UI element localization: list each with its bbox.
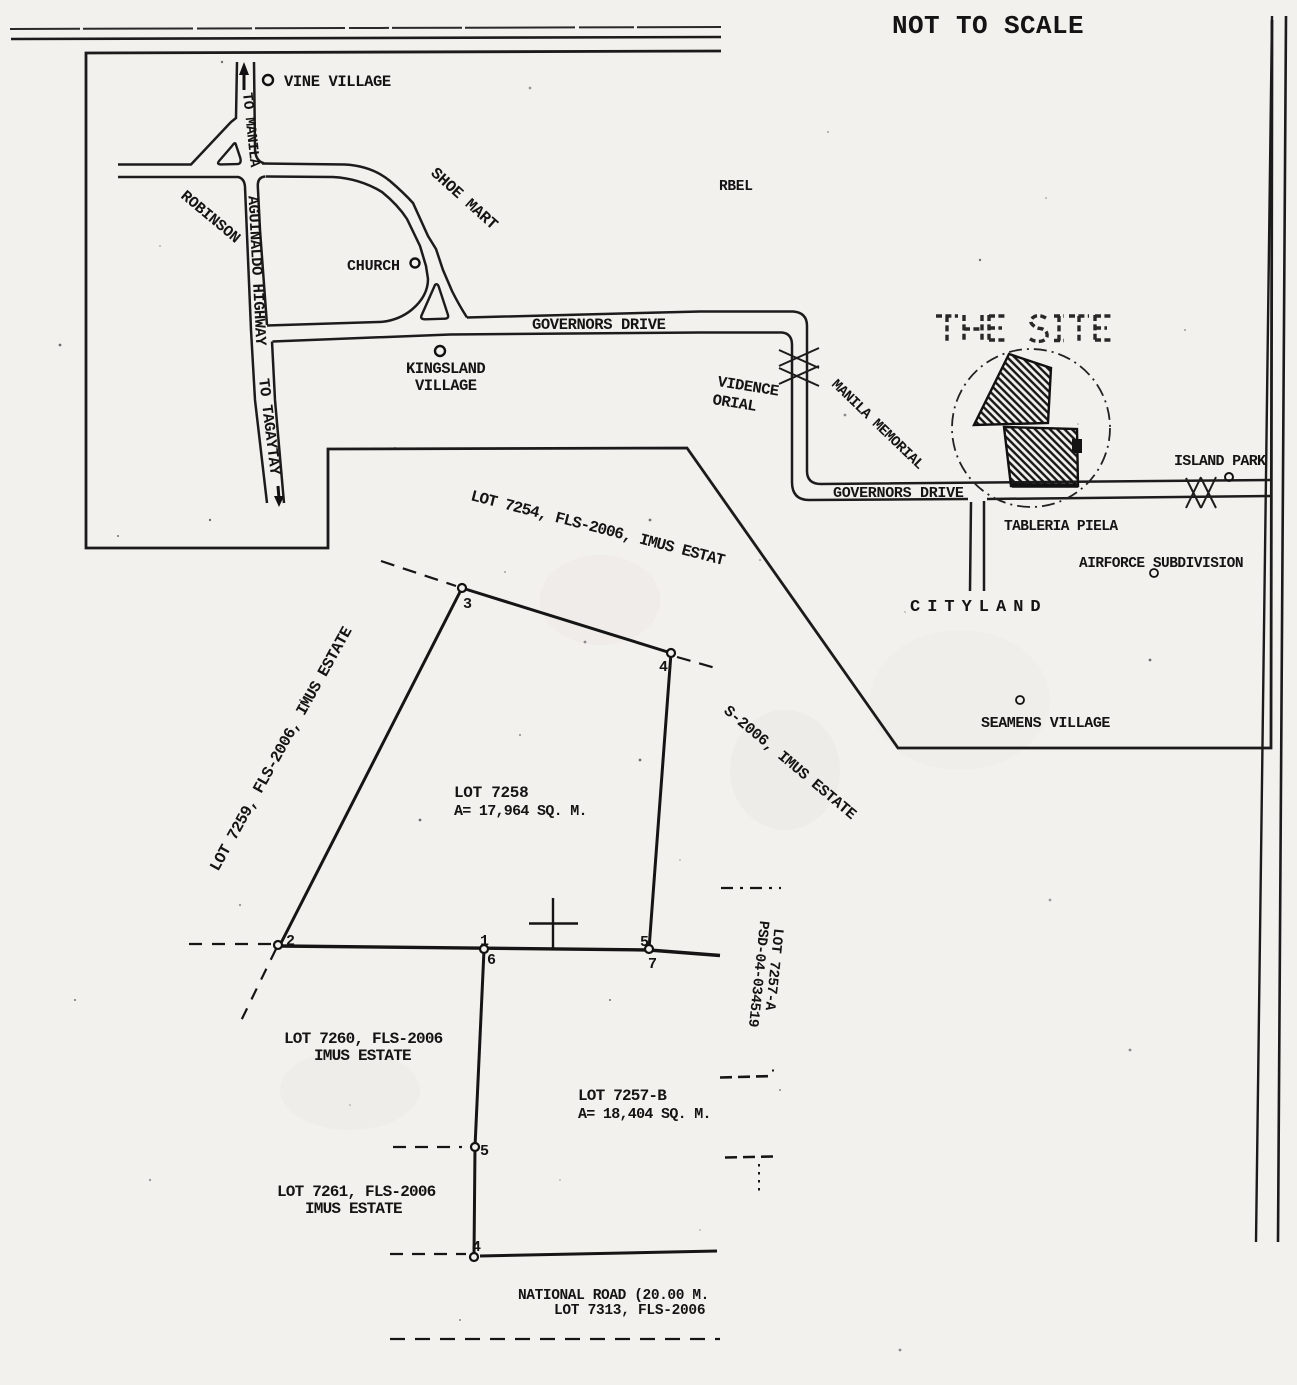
svg-text:IMUS ESTATE: IMUS ESTATE [314, 1047, 411, 1065]
svg-text:CITYLAND: CITYLAND [910, 598, 1048, 617]
svg-text:4: 4 [659, 659, 668, 676]
svg-text:5: 5 [480, 1143, 489, 1160]
svg-text:LOT 7258: LOT 7258 [454, 784, 528, 802]
svg-text:ISLAND PARK: ISLAND PARK [1174, 453, 1266, 470]
svg-text:CHURCH: CHURCH [347, 258, 400, 275]
svg-text:2: 2 [286, 933, 295, 950]
svg-text:5: 5 [640, 934, 649, 951]
svg-text:LOT 7261, FLS-2006: LOT 7261, FLS-2006 [277, 1183, 436, 1201]
svg-text:SEAMENS VILLAGE: SEAMENS VILLAGE [981, 715, 1110, 732]
svg-text:A= 18,404 SQ. M.: A= 18,404 SQ. M. [578, 1106, 711, 1123]
svg-text:A= 17,964 SQ. M.: A= 17,964 SQ. M. [454, 803, 587, 820]
svg-text:VILLAGE: VILLAGE [415, 377, 477, 395]
svg-text:NATIONAL ROAD (20.00 M.: NATIONAL ROAD (20.00 M. [518, 1288, 709, 1304]
svg-text:GOVERNORS DRIVE: GOVERNORS DRIVE [833, 485, 964, 502]
svg-text:AIRFORCE SUBDIVISION: AIRFORCE SUBDIVISION [1079, 556, 1243, 572]
svg-text:LOT 7260, FLS-2006: LOT 7260, FLS-2006 [284, 1030, 443, 1048]
svg-text:7: 7 [648, 956, 657, 973]
svg-text:RBEL: RBEL [719, 179, 753, 195]
svg-text:LOT 7257-B: LOT 7257-B [578, 1087, 667, 1105]
svg-text:VINE VILLAGE: VINE VILLAGE [284, 73, 391, 91]
svg-text:GOVERNORS DRIVE: GOVERNORS DRIVE [532, 316, 666, 334]
svg-text:3: 3 [463, 596, 472, 613]
svg-text:6: 6 [487, 952, 496, 969]
svg-text:IMUS ESTATE: IMUS ESTATE [305, 1200, 402, 1218]
svg-text:1: 1 [480, 933, 489, 950]
svg-text:KINGSLAND: KINGSLAND [406, 360, 485, 378]
svg-text:4: 4 [472, 1239, 481, 1256]
svg-text:NOT TO SCALE: NOT TO SCALE [892, 11, 1084, 41]
svg-text:LOT 7313, FLS-2006: LOT 7313, FLS-2006 [554, 1303, 705, 1319]
svg-text:TABLERIA PIELA: TABLERIA PIELA [1004, 519, 1118, 535]
